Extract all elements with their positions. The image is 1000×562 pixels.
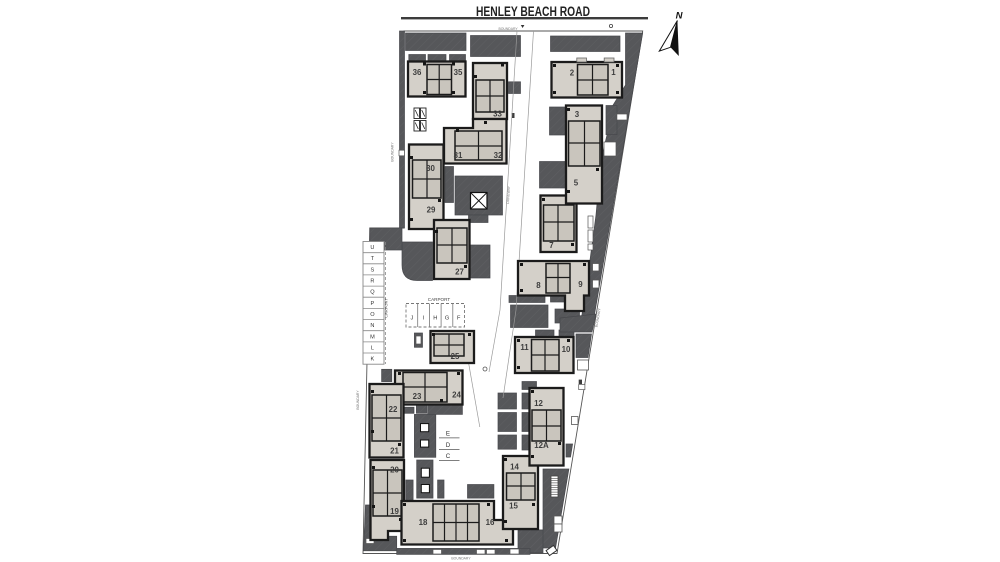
- svg-text:S: S: [371, 267, 375, 273]
- svg-text:29: 29: [427, 206, 436, 215]
- svg-text:BOUNDARY: BOUNDARY: [451, 557, 471, 561]
- svg-text:T: T: [371, 256, 375, 262]
- svg-text:CARPORT: CARPORT: [384, 298, 389, 318]
- svg-text:35: 35: [454, 68, 463, 77]
- svg-text:U: U: [370, 245, 374, 251]
- svg-text:7: 7: [549, 241, 554, 250]
- svg-text:BOUNDARY: BOUNDARY: [391, 142, 395, 162]
- svg-text:22: 22: [389, 405, 398, 414]
- svg-text:L: L: [371, 346, 374, 352]
- svg-text:10: 10: [562, 345, 571, 354]
- svg-text:3: 3: [575, 110, 580, 119]
- svg-text:G: G: [445, 316, 449, 322]
- svg-text:N: N: [676, 11, 684, 22]
- svg-text:1: 1: [611, 68, 616, 77]
- svg-text:33: 33: [493, 110, 502, 119]
- svg-text:36: 36: [413, 68, 422, 77]
- svg-text:24: 24: [452, 391, 461, 400]
- svg-text:C: C: [446, 453, 451, 460]
- svg-text:CARPORT: CARPORT: [428, 297, 451, 302]
- svg-text:BOUNDARY: BOUNDARY: [499, 27, 519, 31]
- svg-text:20: 20: [390, 466, 399, 475]
- svg-text:O: O: [370, 312, 375, 318]
- svg-text:9: 9: [578, 280, 583, 289]
- svg-text:23: 23: [413, 392, 422, 401]
- svg-text:N: N: [370, 323, 374, 329]
- svg-text:P: P: [371, 301, 375, 307]
- svg-text:30: 30: [426, 164, 435, 173]
- svg-text:H: H: [433, 316, 437, 322]
- svg-text:E: E: [446, 431, 450, 438]
- svg-text:12: 12: [534, 399, 543, 408]
- svg-text:14: 14: [510, 463, 519, 472]
- svg-text:2: 2: [570, 69, 575, 78]
- svg-text:HENLEY BEACH ROAD: HENLEY BEACH ROAD: [476, 4, 590, 19]
- svg-text:11: 11: [520, 343, 529, 352]
- svg-text:16: 16: [486, 518, 495, 527]
- svg-text:D: D: [446, 442, 451, 449]
- svg-text:31: 31: [454, 151, 463, 160]
- svg-text:21: 21: [390, 447, 399, 456]
- svg-text:25: 25: [451, 352, 460, 361]
- svg-text:Q: Q: [370, 290, 375, 296]
- svg-text:27: 27: [455, 268, 464, 277]
- svg-text:BOUNDARY: BOUNDARY: [356, 390, 360, 410]
- svg-text:5: 5: [574, 179, 579, 188]
- svg-text:M: M: [370, 334, 375, 340]
- svg-text:19: 19: [390, 507, 399, 516]
- svg-text:J: J: [411, 316, 414, 322]
- svg-text:R: R: [370, 279, 374, 285]
- svg-text:8: 8: [536, 281, 541, 290]
- svg-text:F: F: [457, 316, 461, 322]
- svg-text:15: 15: [509, 502, 518, 511]
- svg-text:12A: 12A: [534, 441, 549, 450]
- svg-text:32: 32: [494, 151, 503, 160]
- svg-text:18: 18: [419, 518, 428, 527]
- svg-text:K: K: [371, 357, 375, 363]
